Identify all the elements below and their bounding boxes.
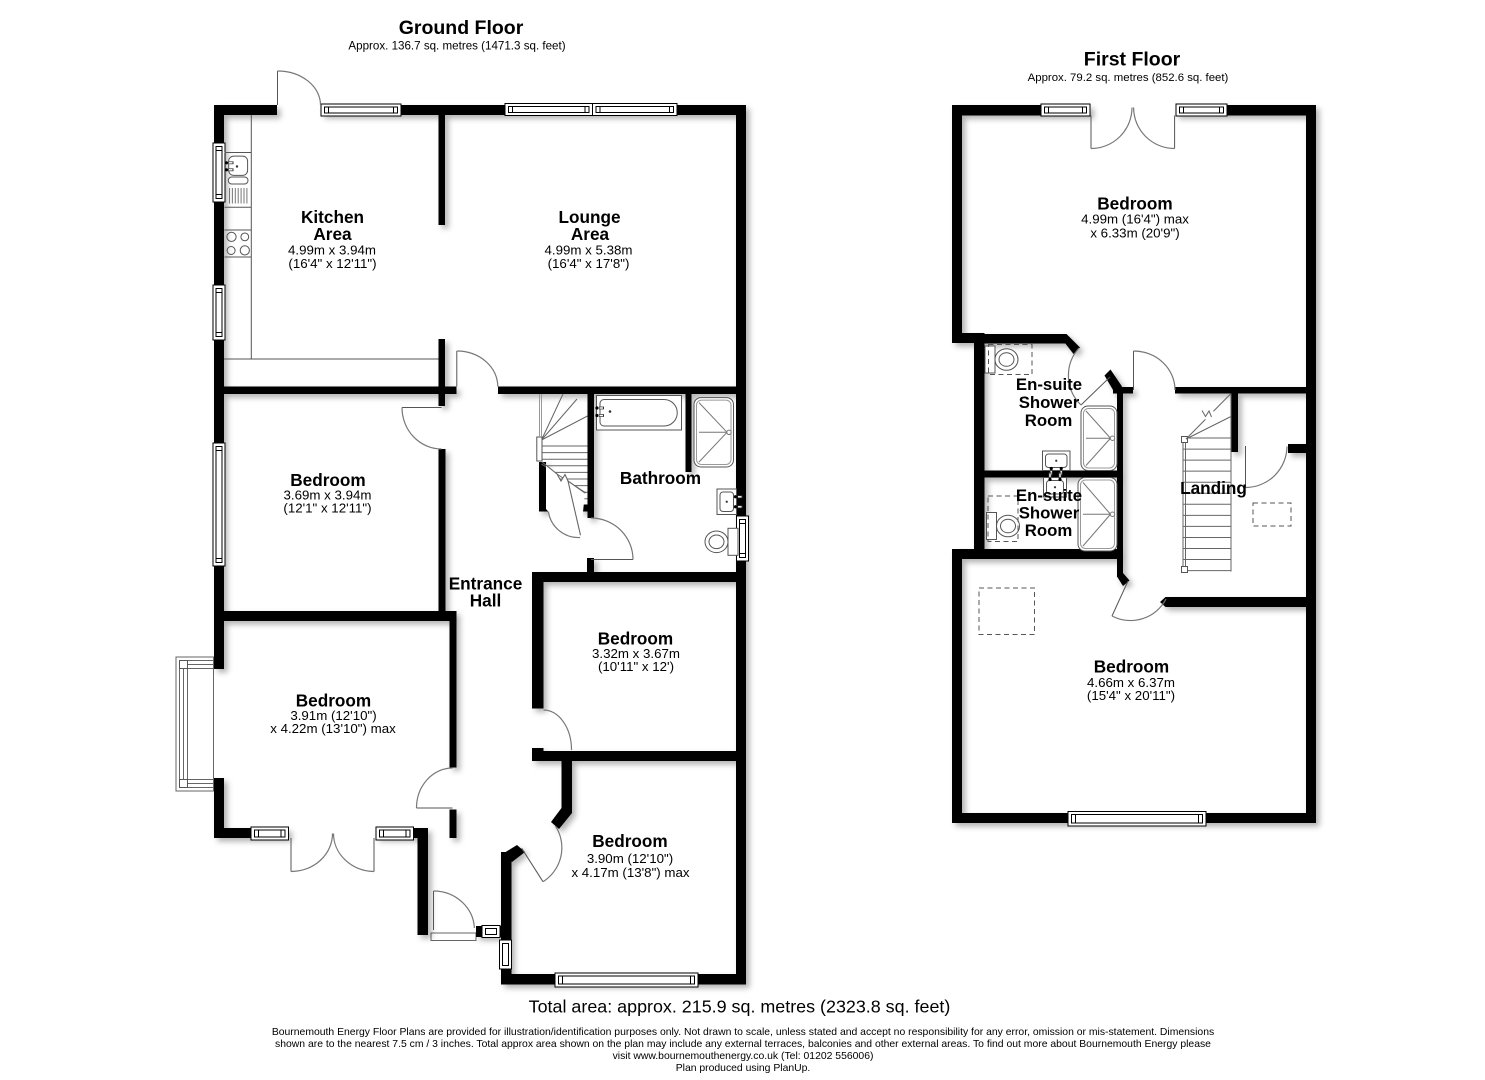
svg-text:Approx. 79.2 sq. metres (852.6: Approx. 79.2 sq. metres (852.6 sq. feet)	[1028, 72, 1229, 84]
svg-text:En-suite: En-suite	[1016, 486, 1082, 505]
svg-text:Room: Room	[1025, 521, 1073, 540]
svg-text:(16'4" x 12'11"): (16'4" x 12'11")	[288, 256, 376, 271]
svg-text:visit www.bournemouthenergy.co: visit www.bournemouthenergy.co.uk (Tel: …	[613, 1051, 874, 1062]
svg-text:x 6.33m (20'9"): x 6.33m (20'9")	[1090, 226, 1179, 241]
svg-text:Shower: Shower	[1019, 504, 1080, 523]
svg-text:Bedroom: Bedroom	[1097, 194, 1172, 214]
svg-text:Area: Area	[571, 224, 610, 244]
svg-text:(15'4" x 20'11"): (15'4" x 20'11")	[1087, 688, 1175, 703]
svg-text:Landing: Landing	[1180, 478, 1247, 498]
svg-text:Ground Floor: Ground Floor	[399, 17, 524, 39]
svg-text:(16'4" x 17'8"): (16'4" x 17'8")	[548, 256, 630, 271]
svg-text:Bathroom: Bathroom	[620, 468, 701, 488]
svg-text:Bedroom: Bedroom	[1094, 657, 1169, 677]
svg-text:(12'1" x 12'11"): (12'1" x 12'11")	[283, 501, 371, 516]
svg-text:Area: Area	[313, 224, 352, 244]
svg-text:3.90m (12'10"): 3.90m (12'10")	[587, 851, 673, 866]
svg-text:Approx. 136.7 sq. metres (1471: Approx. 136.7 sq. metres (1471.3 sq. fee…	[348, 40, 565, 53]
svg-text:x 4.17m (13'8") max: x 4.17m (13'8") max	[571, 865, 689, 880]
svg-text:x 4.22m (13'10") max: x 4.22m (13'10") max	[270, 721, 396, 736]
svg-text:En-suite: En-suite	[1016, 375, 1082, 394]
svg-text:Plan produced using PlanUp.: Plan produced using PlanUp.	[676, 1063, 811, 1074]
svg-text:First Floor: First Floor	[1084, 49, 1181, 71]
svg-text:Bedroom: Bedroom	[592, 831, 667, 851]
svg-text:Shower: Shower	[1019, 393, 1080, 412]
svg-text:4.99m (16'4") max: 4.99m (16'4") max	[1081, 212, 1189, 227]
svg-text:(10'11" x 12'): (10'11" x 12')	[598, 659, 674, 674]
svg-text:Room: Room	[1025, 411, 1073, 430]
svg-text:shown are to the nearest 7.5 c: shown are to the nearest 7.5 cm / 3 inch…	[275, 1039, 1211, 1050]
svg-text:Hall: Hall	[470, 591, 502, 611]
svg-text:Total area: approx. 215.9 sq.: Total area: approx. 215.9 sq. metres (23…	[529, 997, 951, 1017]
svg-text:Bournemouth Energy Floor Plans: Bournemouth Energy Floor Plans are provi…	[272, 1027, 1214, 1038]
